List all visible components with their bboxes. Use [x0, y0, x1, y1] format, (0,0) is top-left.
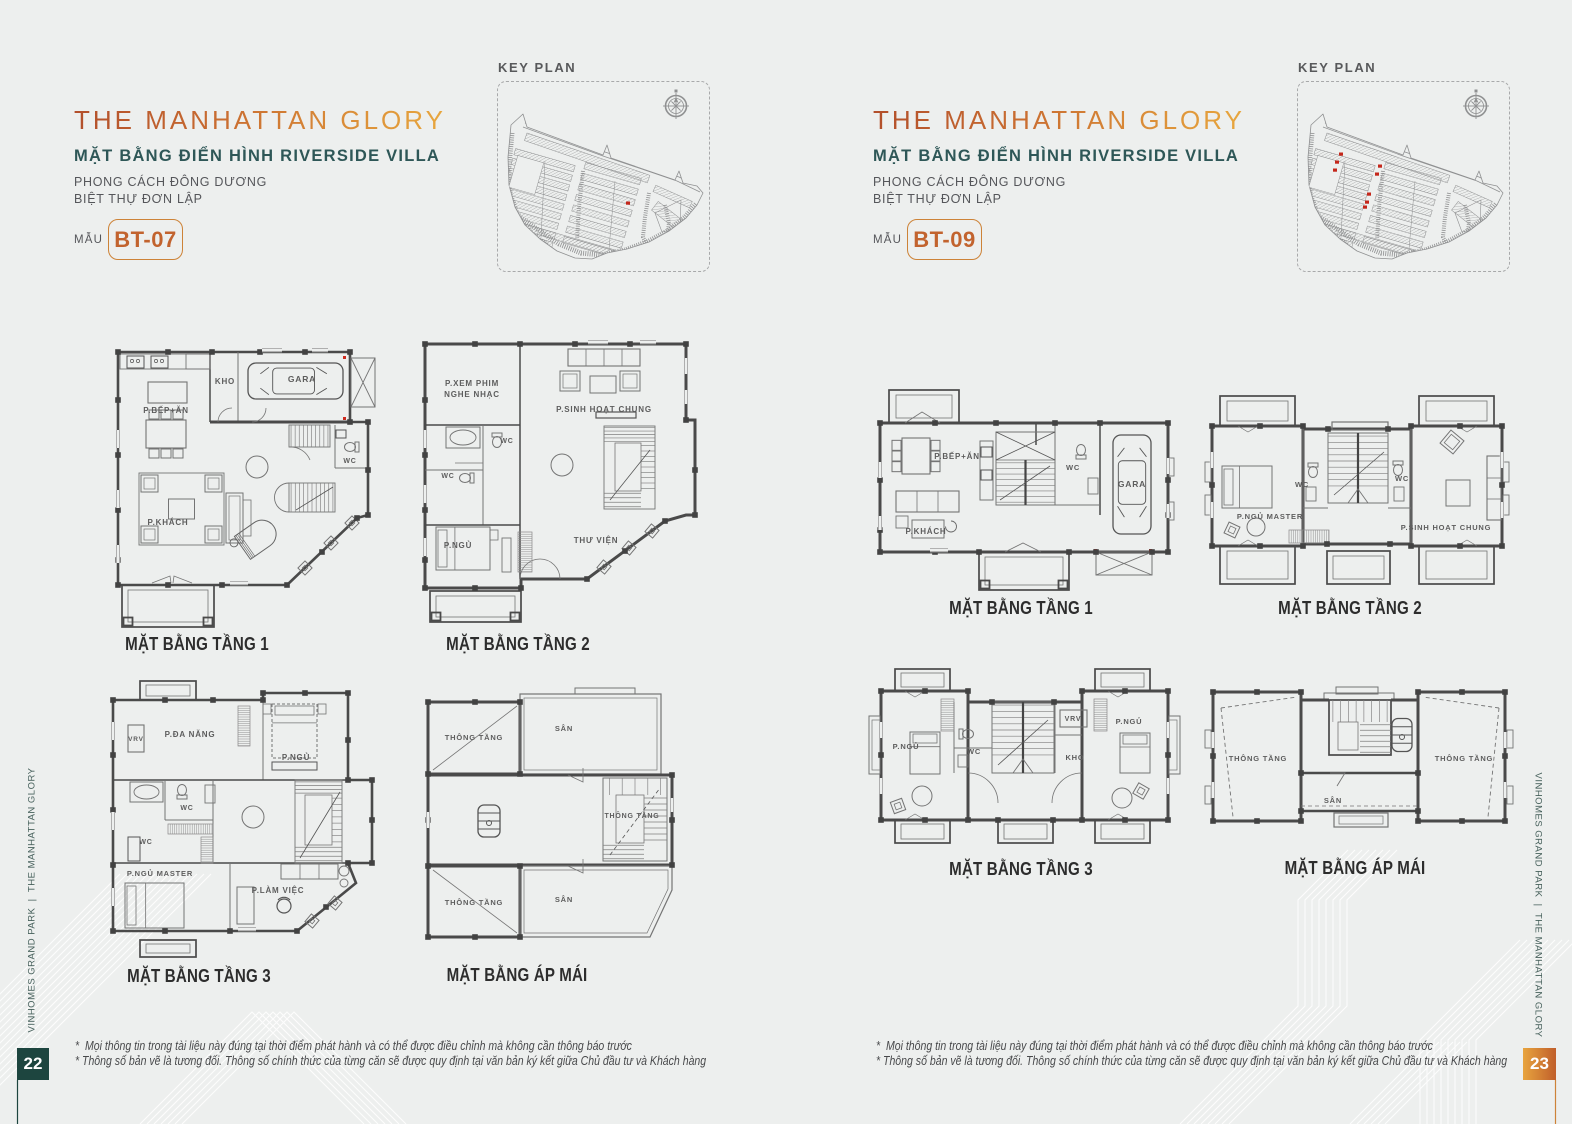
svg-text:P.BẾP+ĂN: P.BẾP+ĂN: [934, 451, 980, 461]
svg-text:VRV: VRV: [128, 736, 144, 743]
svg-text:WC: WC: [180, 805, 193, 812]
svg-text:NGHE NHẠC: NGHE NHẠC: [444, 390, 500, 399]
svg-text:WC: WC: [441, 473, 454, 480]
svg-text:THƯ VIỆN: THƯ VIỆN: [574, 536, 619, 545]
svg-text:GARA: GARA: [1118, 479, 1146, 489]
svg-text:P.NGỦ: P.NGỦ: [1116, 717, 1143, 726]
svg-text:SÂN: SÂN: [555, 895, 573, 904]
svg-text:P.ĐA NĂNG: P.ĐA NĂNG: [165, 730, 216, 739]
svg-text:WC: WC: [500, 438, 513, 445]
svg-text:SÂN: SÂN: [555, 724, 573, 733]
svg-text:VRV: VRV: [1065, 716, 1082, 723]
svg-text:P.XEM PHIM: P.XEM PHIM: [445, 379, 499, 388]
svg-text:P.SINH HOẠT CHUNG: P.SINH HOẠT CHUNG: [556, 405, 652, 414]
svg-text:P.LÀM VIỆC: P.LÀM VIỆC: [252, 886, 305, 895]
svg-text:WC: WC: [967, 747, 981, 756]
svg-text:WC: WC: [1295, 480, 1309, 489]
svg-text:KHO: KHO: [1065, 753, 1084, 762]
svg-text:SÂN: SÂN: [1324, 796, 1342, 805]
svg-text:WC: WC: [139, 839, 152, 846]
svg-text:GARA: GARA: [288, 374, 316, 384]
svg-text:THÔNG TẦNG: THÔNG TẦNG: [1435, 753, 1493, 763]
svg-text:THÔNG TẦNG: THÔNG TẦNG: [445, 897, 503, 907]
svg-text:P.KHÁCH: P.KHÁCH: [905, 527, 946, 536]
svg-text:P.SINH HOẠT CHUNG: P.SINH HOẠT CHUNG: [1401, 523, 1492, 532]
svg-text:THÔNG TẦNG: THÔNG TẦNG: [1229, 753, 1287, 763]
svg-text:P.NGỦ: P.NGỦ: [444, 541, 472, 550]
svg-text:KHO: KHO: [215, 377, 235, 386]
svg-text:P.BẾP+ĂN: P.BẾP+ĂN: [143, 405, 189, 415]
svg-text:WC: WC: [1395, 474, 1409, 483]
svg-text:THÔNG TẦNG: THÔNG TẦNG: [445, 732, 503, 742]
svg-text:P.NGỦ: P.NGỦ: [282, 753, 310, 762]
svg-text:P.NGỦ MASTER: P.NGỦ MASTER: [127, 869, 193, 878]
svg-text:P.KHÁCH: P.KHÁCH: [147, 518, 188, 527]
svg-text:P.NGỦ: P.NGỦ: [893, 742, 920, 751]
svg-text:WC: WC: [1066, 463, 1080, 472]
svg-text:WC: WC: [343, 458, 356, 465]
svg-text:P.NGỦ MASTER: P.NGỦ MASTER: [1237, 512, 1303, 521]
